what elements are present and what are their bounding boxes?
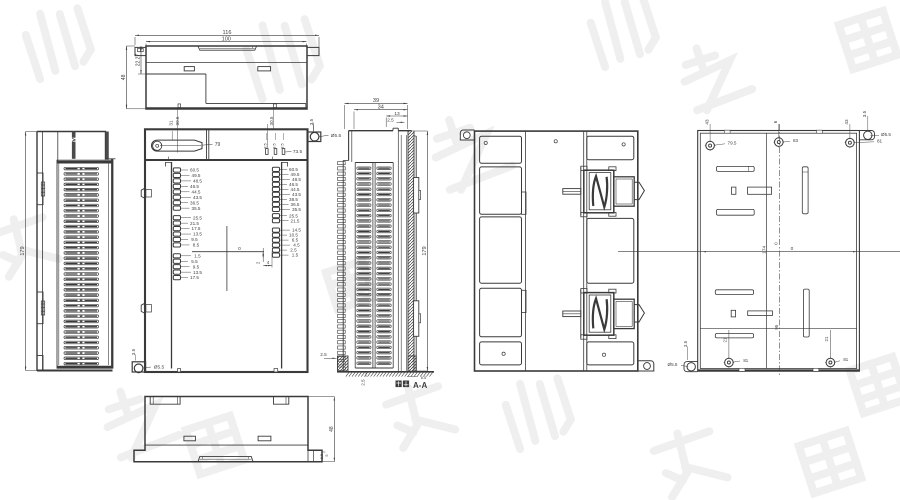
svg-text:1.5: 1.5 — [292, 253, 299, 258]
svg-text:60.5: 60.5 — [190, 168, 199, 173]
svg-text:21: 21 — [824, 336, 829, 341]
svg-text:13: 13 — [394, 111, 400, 117]
svg-text:179: 179 — [20, 246, 26, 255]
svg-text:3.5: 3.5 — [683, 340, 688, 347]
svg-text:79.5: 79.5 — [728, 141, 737, 146]
svg-text:100: 100 — [222, 36, 231, 42]
svg-text:48: 48 — [121, 74, 127, 80]
svg-text:Ø5.5: Ø5.5 — [881, 132, 891, 137]
svg-text:48.5: 48.5 — [193, 179, 202, 184]
svg-text:179: 179 — [422, 246, 428, 255]
svg-text:3.5: 3.5 — [862, 110, 867, 117]
svg-text:31: 31 — [169, 120, 174, 126]
svg-text:13.5: 13.5 — [193, 232, 202, 237]
svg-text:3.5: 3.5 — [131, 348, 136, 355]
svg-text:83: 83 — [793, 138, 799, 143]
svg-text:0: 0 — [791, 246, 794, 252]
svg-text:2.5: 2.5 — [360, 379, 365, 386]
svg-text:21.5: 21.5 — [190, 221, 199, 226]
svg-text:6.5: 6.5 — [421, 375, 427, 380]
svg-text:116: 116 — [223, 30, 232, 36]
svg-text:3.5: 3.5 — [263, 142, 268, 148]
svg-text:17.5: 17.5 — [190, 275, 199, 280]
svg-text:2.5: 2.5 — [387, 117, 394, 122]
svg-text:1.5: 1.5 — [194, 253, 201, 258]
svg-text:6: 6 — [773, 120, 778, 123]
svg-text:34: 34 — [378, 105, 384, 111]
svg-text:81: 81 — [877, 138, 883, 143]
svg-text:48: 48 — [329, 426, 335, 432]
svg-text:A-A: A-A — [413, 381, 427, 390]
svg-text:13.5: 13.5 — [193, 270, 202, 275]
svg-text:43: 43 — [844, 119, 849, 125]
svg-text:35.5: 35.5 — [292, 207, 301, 212]
svg-text:35.5: 35.5 — [192, 206, 201, 211]
svg-text:8.5: 8.5 — [193, 243, 200, 248]
svg-text:49.5: 49.5 — [192, 173, 201, 178]
svg-text:Ø5.5: Ø5.5 — [331, 133, 342, 139]
svg-text:43.5: 43.5 — [193, 195, 202, 200]
svg-text:9.5: 9.5 — [191, 237, 198, 242]
svg-text:21: 21 — [722, 337, 727, 342]
svg-text:9.5: 9.5 — [193, 264, 200, 269]
svg-text:Ø5.5: Ø5.5 — [668, 362, 678, 367]
svg-text:46.5: 46.5 — [190, 184, 199, 189]
svg-text:17.5: 17.5 — [192, 226, 201, 231]
svg-text:3.5: 3.5 — [271, 142, 276, 148]
svg-text:44.5: 44.5 — [192, 189, 201, 194]
svg-text:73.5: 73.5 — [293, 149, 303, 155]
svg-text:3.5: 3.5 — [279, 142, 284, 148]
svg-text:25.5: 25.5 — [193, 215, 202, 220]
svg-text:22.27: 22.27 — [136, 54, 142, 67]
svg-text:2.5: 2.5 — [320, 352, 327, 357]
svg-text:5.5: 5.5 — [191, 259, 198, 264]
svg-text:81: 81 — [743, 358, 748, 363]
svg-text:0: 0 — [238, 246, 241, 252]
svg-text:Ø5.5: Ø5.5 — [154, 365, 165, 371]
svg-text:4: 4 — [267, 260, 270, 265]
svg-text:36.5: 36.5 — [190, 200, 199, 205]
svg-text:43: 43 — [704, 119, 709, 125]
svg-text:30.5: 30.5 — [269, 116, 274, 125]
svg-text:79: 79 — [215, 142, 221, 148]
svg-text:81: 81 — [843, 357, 848, 362]
svg-text:39: 39 — [373, 98, 379, 104]
svg-text:3.5: 3.5 — [309, 118, 314, 125]
svg-text:21.5: 21.5 — [291, 218, 300, 223]
svg-text:30.5: 30.5 — [175, 116, 180, 125]
svg-text:95: 95 — [774, 324, 779, 330]
